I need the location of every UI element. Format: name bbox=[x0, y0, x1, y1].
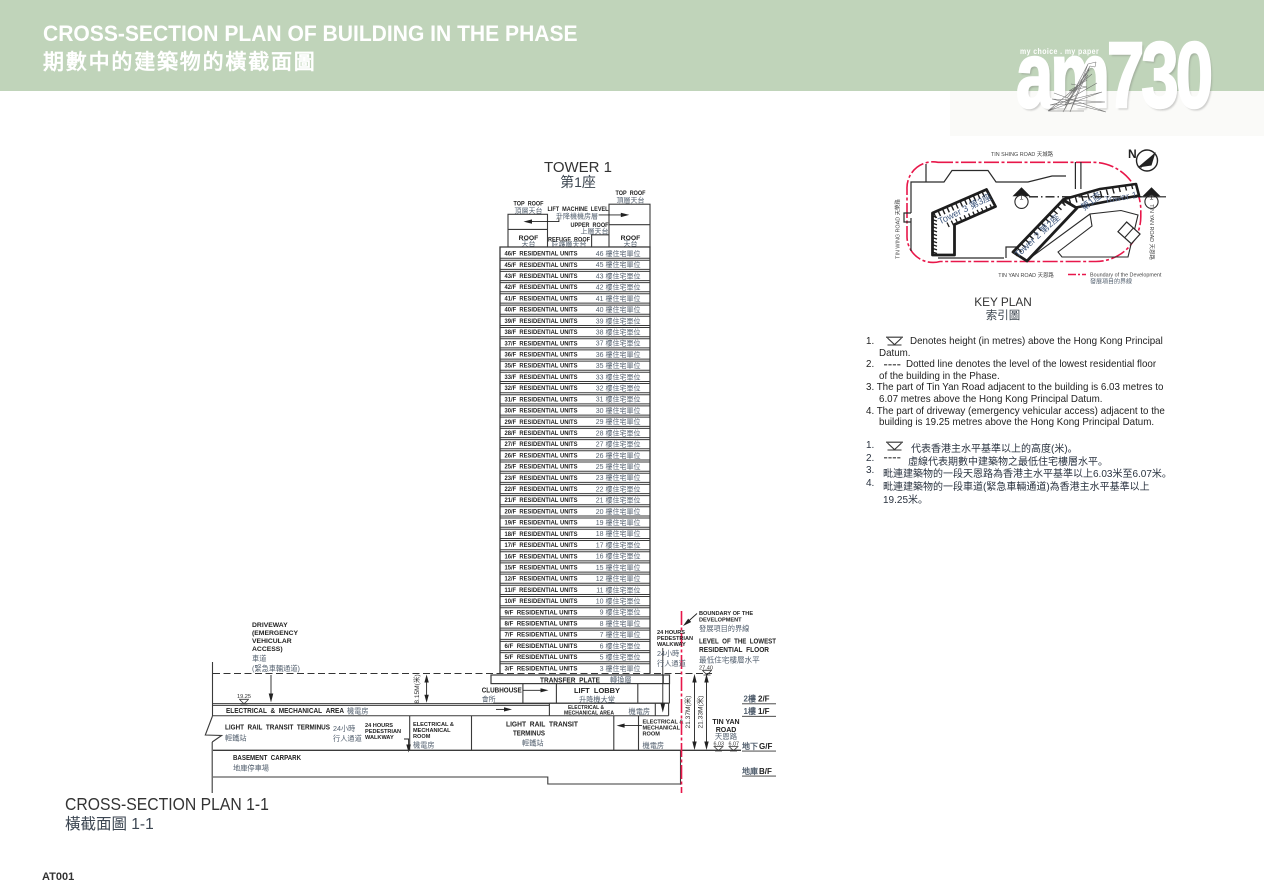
svg-text:3 樓住宅單位: 3 樓住宅單位 bbox=[600, 664, 641, 673]
svg-text:頂層天台: 頂層天台 bbox=[617, 196, 645, 205]
svg-text:DRIVEWAY: DRIVEWAY bbox=[252, 622, 288, 629]
svg-text:41/F RESIDENTIAL UNITS: 41/F RESIDENTIAL UNITS bbox=[505, 295, 579, 302]
svg-text:36 樓住宅單位: 36 樓住宅單位 bbox=[596, 350, 641, 359]
svg-text:1: 1 bbox=[1019, 193, 1023, 202]
svg-text:LIGHT RAIL TRANSIT TERMINUS: LIGHT RAIL TRANSIT TERMINUS bbox=[225, 723, 330, 732]
svg-text:升降機大堂: 升降機大堂 bbox=[579, 695, 615, 704]
svg-text:Boundary of the Development: Boundary of the Development bbox=[1090, 273, 1162, 279]
svg-text:8.15M(米): 8.15M(米) bbox=[412, 674, 421, 703]
svg-text:TOP ROOF: TOP ROOF bbox=[616, 190, 646, 197]
svg-text:ACCESS): ACCESS) bbox=[252, 646, 283, 653]
svg-text:ROOM: ROOM bbox=[413, 734, 431, 740]
svg-text:行人通道: 行人通道 bbox=[657, 659, 686, 668]
svg-text:23/F RESIDENTIAL UNITS: 23/F RESIDENTIAL UNITS bbox=[505, 475, 579, 482]
svg-text:25 樓住宅單位: 25 樓住宅單位 bbox=[596, 462, 641, 471]
svg-text:會所: 會所 bbox=[482, 695, 496, 704]
svg-text:46 樓住宅單位: 46 樓住宅單位 bbox=[596, 249, 641, 258]
svg-text:CLUBHOUSE: CLUBHOUSE bbox=[482, 687, 522, 694]
svg-text:G/F: G/F bbox=[759, 742, 772, 751]
svg-text:WALKWAY: WALKWAY bbox=[365, 735, 394, 741]
svg-text:機電房: 機電房 bbox=[347, 706, 369, 715]
svg-text:地庫: 地庫 bbox=[742, 766, 758, 776]
svg-text:31/F RESIDENTIAL UNITS: 31/F RESIDENTIAL UNITS bbox=[505, 396, 579, 403]
svg-text:7 樓住宅單位: 7 樓住宅單位 bbox=[600, 630, 641, 639]
svg-text:12 樓住宅單位: 12 樓住宅單位 bbox=[596, 574, 641, 583]
svg-text:33/F RESIDENTIAL UNITS: 33/F RESIDENTIAL UNITS bbox=[505, 374, 579, 381]
svg-text:38 樓住宅單位: 38 樓住宅單位 bbox=[596, 328, 641, 337]
svg-text:發展項目的界線: 發展項目的界線 bbox=[1090, 278, 1132, 286]
svg-text:9 樓住宅單位: 9 樓住宅單位 bbox=[600, 608, 641, 617]
svg-text:43 樓住宅單位: 43 樓住宅單位 bbox=[596, 271, 641, 280]
svg-text:TRANSFER PLATE: TRANSFER PLATE bbox=[540, 675, 600, 684]
svg-text:機電房: 機電房 bbox=[643, 741, 665, 750]
svg-text:8/F RESIDENTIAL UNITS: 8/F RESIDENTIAL UNITS bbox=[505, 621, 579, 628]
svg-text:地下: 地下 bbox=[742, 741, 758, 751]
svg-text:22 樓住宅單位: 22 樓住宅單位 bbox=[596, 484, 641, 493]
svg-text:38/F RESIDENTIAL UNITS: 38/F RESIDENTIAL UNITS bbox=[505, 329, 579, 336]
svg-text:37 樓住宅單位: 37 樓住宅單位 bbox=[596, 339, 641, 348]
svg-text:37/F RESIDENTIAL UNITS: 37/F RESIDENTIAL UNITS bbox=[505, 340, 579, 347]
svg-text:35 樓住宅單位: 35 樓住宅單位 bbox=[596, 361, 641, 370]
svg-text:29/F RESIDENTIAL UNITS: 29/F RESIDENTIAL UNITS bbox=[505, 419, 579, 426]
svg-text:26 樓住宅單位: 26 樓住宅單位 bbox=[596, 451, 641, 460]
svg-text:TERMINUS: TERMINUS bbox=[513, 729, 545, 738]
svg-text:45 樓住宅單位: 45 樓住宅單位 bbox=[596, 260, 641, 269]
svg-text:40/F RESIDENTIAL UNITS: 40/F RESIDENTIAL UNITS bbox=[505, 307, 579, 314]
svg-text:15/F RESIDENTIAL UNITS: 15/F RESIDENTIAL UNITS bbox=[505, 565, 579, 572]
svg-text:車道: 車道 bbox=[252, 654, 266, 663]
svg-text:LIGHT RAIL TRANSIT: LIGHT RAIL TRANSIT bbox=[506, 720, 578, 729]
svg-text:KEY PLAN: KEY PLAN bbox=[974, 295, 1032, 309]
svg-text:46/F RESIDENTIAL UNITS: 46/F RESIDENTIAL UNITS bbox=[505, 251, 579, 258]
svg-text:轉換層: 轉換層 bbox=[610, 676, 632, 685]
svg-text:機電房: 機電房 bbox=[629, 707, 651, 716]
svg-text:27/F RESIDENTIAL UNITS: 27/F RESIDENTIAL UNITS bbox=[505, 441, 579, 448]
svg-text:41 樓住宅單位: 41 樓住宅單位 bbox=[596, 294, 641, 303]
svg-text:N: N bbox=[1128, 147, 1137, 161]
svg-text:15 樓住宅單位: 15 樓住宅單位 bbox=[596, 563, 641, 572]
svg-text:TIN YAN ROAD 天恩路: TIN YAN ROAD 天恩路 bbox=[998, 271, 1054, 279]
svg-text:ELECTRICAL & MECHANICAL ARE: ELECTRICAL & MECHANICAL AREA bbox=[226, 706, 345, 715]
svg-text:33 樓住宅單位: 33 樓住宅單位 bbox=[596, 372, 641, 381]
svg-text:VEHICULAR: VEHICULAR bbox=[252, 638, 292, 645]
svg-text:輕鐵站: 輕鐵站 bbox=[522, 739, 544, 748]
svg-text:行人通道: 行人通道 bbox=[333, 734, 362, 743]
svg-text:6 樓住宅單位: 6 樓住宅單位 bbox=[600, 641, 641, 650]
svg-text:(緊急車輛通道): (緊急車輛通道) bbox=[252, 664, 300, 673]
svg-text:TIN YAN ROAD 天恩路: TIN YAN ROAD 天恩路 bbox=[1148, 204, 1156, 260]
svg-text:17 樓住宅單位: 17 樓住宅單位 bbox=[596, 541, 641, 550]
svg-text:45/F RESIDENTIAL UNITS: 45/F RESIDENTIAL UNITS bbox=[505, 262, 579, 269]
svg-text:35/F RESIDENTIAL UNITS: 35/F RESIDENTIAL UNITS bbox=[505, 363, 579, 370]
svg-text:BOUNDARY OF THE: BOUNDARY OF THE bbox=[699, 611, 753, 617]
svg-text:42 樓住宅單位: 42 樓住宅單位 bbox=[596, 283, 641, 292]
svg-text:18/F RESIDENTIAL UNITS: 18/F RESIDENTIAL UNITS bbox=[505, 531, 579, 538]
svg-text:5 樓住宅單位: 5 樓住宅單位 bbox=[600, 653, 641, 662]
svg-text:24小時: 24小時 bbox=[657, 649, 679, 658]
svg-text:ROOM: ROOM bbox=[643, 732, 661, 738]
svg-text:27 樓住宅單位: 27 樓住宅單位 bbox=[596, 440, 641, 449]
svg-text:BASEMENT CARPARK: BASEMENT CARPARK bbox=[233, 753, 302, 762]
svg-text:3/F RESIDENTIAL UNITS: 3/F RESIDENTIAL UNITS bbox=[505, 665, 579, 672]
svg-text:B/F: B/F bbox=[759, 767, 772, 776]
svg-text:TOP ROOF: TOP ROOF bbox=[514, 201, 544, 208]
svg-text:19/F RESIDENTIAL UNITS: 19/F RESIDENTIAL UNITS bbox=[505, 520, 579, 527]
svg-text:WALKWAY: WALKWAY bbox=[657, 642, 686, 648]
svg-text:升降機機房層: 升降機機房層 bbox=[556, 212, 598, 221]
svg-text:8 樓住宅單位: 8 樓住宅單位 bbox=[600, 619, 641, 628]
svg-text:19 樓住宅單位: 19 樓住宅單位 bbox=[596, 518, 641, 527]
svg-text:21 樓住宅單位: 21 樓住宅單位 bbox=[596, 496, 641, 505]
svg-text:20/F RESIDENTIAL UNITS: 20/F RESIDENTIAL UNITS bbox=[505, 508, 579, 515]
svg-text:1/F: 1/F bbox=[758, 707, 770, 716]
svg-text:16/F RESIDENTIAL UNITS: 16/F RESIDENTIAL UNITS bbox=[505, 553, 579, 560]
svg-text:21/F RESIDENTIAL UNITS: 21/F RESIDENTIAL UNITS bbox=[505, 497, 579, 504]
svg-text:42/F RESIDENTIAL UNITS: 42/F RESIDENTIAL UNITS bbox=[505, 284, 579, 291]
svg-text:24小時: 24小時 bbox=[333, 724, 355, 733]
svg-text:10 樓住宅單位: 10 樓住宅單位 bbox=[596, 597, 641, 606]
svg-text:LIFT LOBBY: LIFT LOBBY bbox=[574, 686, 620, 695]
svg-text:LIFT MACHINE LEVEL: LIFT MACHINE LEVEL bbox=[548, 206, 609, 213]
svg-text:TIN WING ROAD 天榮路: TIN WING ROAD 天榮路 bbox=[894, 199, 902, 259]
svg-text:RESIDENTIAL FLOOR: RESIDENTIAL FLOOR bbox=[699, 647, 769, 654]
svg-text:26/F RESIDENTIAL UNITS: 26/F RESIDENTIAL UNITS bbox=[505, 452, 579, 459]
svg-text:25/F RESIDENTIAL UNITS: 25/F RESIDENTIAL UNITS bbox=[505, 464, 579, 471]
svg-text:頂層天台: 頂層天台 bbox=[515, 206, 543, 215]
svg-text:LEVEL OF THE LOWEST: LEVEL OF THE LOWEST bbox=[699, 639, 777, 646]
svg-text:第1座: 第1座 bbox=[560, 174, 596, 190]
svg-text:發展項目的界線: 發展項目的界線 bbox=[699, 624, 749, 633]
svg-text:32 樓住宅單位: 32 樓住宅單位 bbox=[596, 384, 641, 393]
svg-text:7/F RESIDENTIAL UNITS: 7/F RESIDENTIAL UNITS bbox=[505, 632, 579, 639]
svg-text:28 樓住宅單位: 28 樓住宅單位 bbox=[596, 428, 641, 437]
svg-text:9/F RESIDENTIAL UNITS: 9/F RESIDENTIAL UNITS bbox=[505, 609, 579, 616]
svg-text:機電房: 機電房 bbox=[413, 741, 435, 750]
svg-text:21.33M(米): 21.33M(米) bbox=[696, 696, 705, 729]
svg-text:22/F RESIDENTIAL UNITS: 22/F RESIDENTIAL UNITS bbox=[505, 486, 579, 493]
svg-text:12/F RESIDENTIAL UNITS: 12/F RESIDENTIAL UNITS bbox=[505, 576, 579, 583]
svg-text:31 樓住宅單位: 31 樓住宅單位 bbox=[596, 395, 641, 404]
svg-text:(EMERGENCY: (EMERGENCY bbox=[252, 630, 299, 637]
svg-text:6/F RESIDENTIAL UNITS: 6/F RESIDENTIAL UNITS bbox=[505, 643, 579, 650]
svg-text:21.37M(米): 21.37M(米) bbox=[683, 696, 692, 729]
svg-text:1樓: 1樓 bbox=[744, 706, 756, 716]
svg-text:28/F RESIDENTIAL UNITS: 28/F RESIDENTIAL UNITS bbox=[505, 430, 579, 437]
svg-text:43/F RESIDENTIAL UNITS: 43/F RESIDENTIAL UNITS bbox=[505, 273, 579, 280]
svg-text:TIN YAN: TIN YAN bbox=[712, 719, 739, 726]
svg-text:索引圖: 索引圖 bbox=[986, 308, 1021, 322]
svg-text:天恩路: 天恩路 bbox=[715, 732, 738, 741]
svg-text:32/F RESIDENTIAL UNITS: 32/F RESIDENTIAL UNITS bbox=[505, 385, 579, 392]
svg-text:2/F: 2/F bbox=[758, 695, 770, 704]
svg-text:11/F RESIDENTIAL UNITS: 11/F RESIDENTIAL UNITS bbox=[505, 587, 579, 594]
svg-text:30 樓住宅單位: 30 樓住宅單位 bbox=[596, 406, 641, 415]
svg-text:39/F RESIDENTIAL UNITS: 39/F RESIDENTIAL UNITS bbox=[505, 318, 579, 325]
svg-text:地庫停車場: 地庫停車場 bbox=[233, 764, 269, 773]
svg-text:40 樓住宅單位: 40 樓住宅單位 bbox=[596, 305, 641, 314]
svg-text:10/F RESIDENTIAL UNITS: 10/F RESIDENTIAL UNITS bbox=[505, 598, 579, 605]
svg-text:39 樓住宅單位: 39 樓住宅單位 bbox=[596, 316, 641, 325]
svg-text:TIN SHING ROAD 天城路: TIN SHING ROAD 天城路 bbox=[991, 150, 1054, 158]
svg-text:18 樓住宅單位: 18 樓住宅單位 bbox=[596, 529, 641, 538]
svg-text:上層天台: 上層天台 bbox=[581, 227, 609, 236]
svg-text:17/F RESIDENTIAL UNITS: 17/F RESIDENTIAL UNITS bbox=[505, 542, 579, 549]
svg-text:最低住宅樓層水平: 最低住宅樓層水平 bbox=[699, 655, 760, 665]
svg-text:29 樓住宅單位: 29 樓住宅單位 bbox=[596, 417, 641, 426]
svg-text:5/F RESIDENTIAL UNITS: 5/F RESIDENTIAL UNITS bbox=[505, 654, 579, 661]
svg-text:2樓: 2樓 bbox=[744, 694, 756, 704]
svg-text:16 樓住宅單位: 16 樓住宅單位 bbox=[596, 552, 641, 561]
svg-text:DEVELOPMENT: DEVELOPMENT bbox=[699, 618, 742, 624]
svg-text:11 樓住宅單位: 11 樓住宅單位 bbox=[596, 585, 640, 594]
svg-text:30/F RESIDENTIAL UNITS: 30/F RESIDENTIAL UNITS bbox=[505, 408, 579, 415]
svg-text:23 樓住宅單位: 23 樓住宅單位 bbox=[596, 473, 641, 482]
svg-text:20 樓住宅單位: 20 樓住宅單位 bbox=[596, 507, 641, 516]
svg-text:36/F RESIDENTIAL UNITS: 36/F RESIDENTIAL UNITS bbox=[505, 352, 579, 359]
svg-text:輕鐵站: 輕鐵站 bbox=[225, 734, 247, 743]
